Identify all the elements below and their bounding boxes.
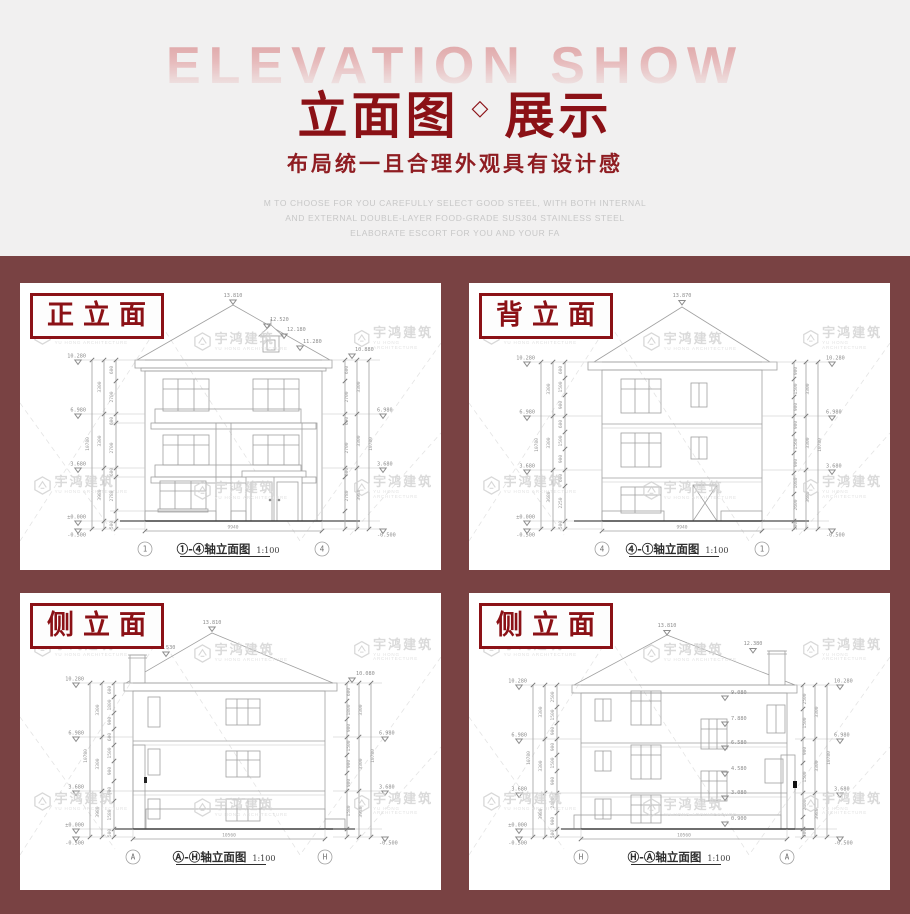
panel-side-elevation-right: 宇鸿建筑YU HONG ARCHITECTURE宇鸿建筑YU HONG ARCH… xyxy=(469,593,890,890)
svg-text:1800: 1800 xyxy=(107,699,113,710)
svg-text:10780: 10780 xyxy=(370,749,376,763)
house-side-a xyxy=(115,633,355,829)
svg-text:Ⓐ-Ⓗ轴立面图1:100: Ⓐ-Ⓗ轴立面图1:100 xyxy=(173,850,276,864)
svg-text:10780: 10780 xyxy=(83,749,89,763)
elevation-gallery: 宇鸿建筑YU HONG ARCHITECTURE宇鸿建筑YU HONG ARCH… xyxy=(0,256,910,914)
svg-text:1500: 1500 xyxy=(802,717,808,728)
svg-text:600: 600 xyxy=(344,366,350,375)
fineprint: M TO CHOOSE FOR YOU CAREFULLY SELECT GOO… xyxy=(0,196,910,241)
page: ELEVATION SHOW 立面图◇展示 布局统一且合理外观具有设计感 M T… xyxy=(0,0,910,914)
left-small-windows xyxy=(595,699,611,819)
svg-text:10.280: 10.280 xyxy=(508,679,527,685)
svg-text:1500: 1500 xyxy=(107,747,113,758)
svg-text:6.580: 6.580 xyxy=(731,740,747,746)
svg-text:600: 600 xyxy=(107,733,113,742)
svg-text:900: 900 xyxy=(802,747,808,756)
svg-text:2780: 2780 xyxy=(109,490,115,501)
svg-text:2700: 2700 xyxy=(344,391,350,402)
svg-text:0.900: 0.900 xyxy=(731,816,747,822)
axis-left: A xyxy=(131,853,136,862)
svg-text:1500: 1500 xyxy=(802,771,808,782)
elevation-triangles xyxy=(837,685,843,841)
svg-text:4.580: 4.580 xyxy=(731,766,747,772)
svg-text:1500: 1500 xyxy=(346,740,352,751)
svg-text:-0.500: -0.500 xyxy=(377,533,396,539)
svg-text:10.880: 10.880 xyxy=(355,347,374,353)
plinth-mid xyxy=(231,511,246,521)
svg-text:3.680: 3.680 xyxy=(834,787,850,793)
fineprint-line-3: ELABORATE ESCORT FOR YOU AND YOUR FA xyxy=(0,226,910,241)
floor3-balcony xyxy=(151,409,316,429)
svg-text:2700: 2700 xyxy=(344,442,350,453)
svg-text:600: 600 xyxy=(558,474,564,483)
svg-text:10780: 10780 xyxy=(85,437,91,451)
svg-text:6.980: 6.980 xyxy=(377,408,393,414)
svg-text:600: 600 xyxy=(107,686,113,695)
plinth xyxy=(574,815,781,829)
center-windows xyxy=(226,699,260,821)
svg-text:10.280: 10.280 xyxy=(65,677,84,683)
title-diamond-icon: ◇ xyxy=(472,95,493,121)
elevation-triangles xyxy=(829,362,835,533)
svg-text:900: 900 xyxy=(346,760,352,769)
svg-text:6.980: 6.980 xyxy=(834,733,850,739)
page-subtitle: 布局统一且合理外观具有设计感 xyxy=(0,148,910,178)
svg-text:3980: 3980 xyxy=(538,808,544,819)
panel-side-elevation-left: 宇鸿建筑YU HONG ARCHITECTURE宇鸿建筑YU HONG ARCH… xyxy=(20,593,441,890)
facade xyxy=(581,693,787,829)
svg-text:2780: 2780 xyxy=(344,490,350,501)
svg-text:900: 900 xyxy=(346,779,352,788)
svg-text:900: 900 xyxy=(550,777,556,786)
svg-text:600: 600 xyxy=(109,417,115,426)
svg-text:-0.500: -0.500 xyxy=(508,841,527,847)
svg-text:10780: 10780 xyxy=(534,438,540,452)
fineprint-line-2: AND EXTERNAL DOUBLE-LAYER FOOD-GRADE SUS… xyxy=(0,211,910,226)
svg-text:3300: 3300 xyxy=(95,704,101,715)
svg-text:6.980: 6.980 xyxy=(511,733,527,739)
svg-text:3980: 3980 xyxy=(814,808,820,819)
svg-text:900: 900 xyxy=(793,421,799,430)
svg-text:10.280: 10.280 xyxy=(67,354,86,360)
svg-text:900: 900 xyxy=(550,743,556,752)
width-dimension: 9940 xyxy=(227,525,238,531)
entry-door xyxy=(242,471,306,521)
svg-text:2400: 2400 xyxy=(802,799,808,810)
svg-text:10780: 10780 xyxy=(826,751,832,765)
caption-scale: 1:100 xyxy=(256,546,279,555)
caption-scale: 1:100 xyxy=(705,546,728,555)
page-title-right: 展示 xyxy=(504,88,612,144)
svg-text:1500: 1500 xyxy=(550,757,556,768)
panel-front-elevation: 宇鸿建筑YU HONG ARCHITECTURE宇鸿建筑YU HONG ARCH… xyxy=(20,283,441,570)
svg-text:3980: 3980 xyxy=(358,806,364,817)
caption-text: ④-①轴立面图 xyxy=(626,542,700,556)
svg-text:900: 900 xyxy=(550,817,556,826)
svg-text:500: 500 xyxy=(558,521,564,530)
svg-text:3.080: 3.080 xyxy=(731,790,747,796)
svg-text:2250: 2250 xyxy=(558,497,564,508)
svg-text:1080: 1080 xyxy=(793,477,799,488)
dimensions-left: 600 2700 600 2700 600 2780 500 3300 3300… xyxy=(67,354,145,539)
svg-text:1500: 1500 xyxy=(793,383,799,394)
svg-text:900: 900 xyxy=(107,767,113,776)
cornice xyxy=(124,683,337,691)
svg-text:3680: 3680 xyxy=(805,491,811,502)
axis-left: 4 xyxy=(600,545,605,554)
svg-text:3300: 3300 xyxy=(97,381,103,392)
svg-text:500: 500 xyxy=(107,829,113,838)
slab-lines xyxy=(602,424,762,478)
svg-text:1560: 1560 xyxy=(793,438,799,449)
svg-text:3300: 3300 xyxy=(356,381,362,392)
stone-pillar xyxy=(133,745,145,829)
svg-text:10.280: 10.280 xyxy=(834,679,853,685)
svg-text:10.280: 10.280 xyxy=(516,356,535,362)
svg-text:9.080: 9.080 xyxy=(731,690,747,696)
svg-text:3980: 3980 xyxy=(356,489,362,500)
svg-text:1500: 1500 xyxy=(558,381,564,392)
plinth xyxy=(146,809,325,829)
svg-text:1580: 1580 xyxy=(107,809,113,820)
svg-text:±0.000: ±0.000 xyxy=(516,515,535,521)
chimney xyxy=(128,655,147,683)
axis-right: H xyxy=(323,853,328,862)
svg-text:12.380: 12.380 xyxy=(744,641,763,647)
svg-text:900: 900 xyxy=(550,727,556,736)
cornice xyxy=(135,360,332,368)
ground-floor-window xyxy=(158,481,208,512)
cornice-band xyxy=(141,368,326,371)
svg-text:3.680: 3.680 xyxy=(519,464,535,470)
bottom-dimension: 9940 xyxy=(143,521,324,533)
axis-left: 1 xyxy=(143,545,148,554)
svg-text:2700: 2700 xyxy=(109,442,115,453)
svg-text:6.980: 6.980 xyxy=(826,410,842,416)
svg-text:3.680: 3.680 xyxy=(377,462,393,468)
svg-text:3300: 3300 xyxy=(805,437,811,448)
svg-text:6.980: 6.980 xyxy=(68,731,84,737)
panel-label-side-left: 侧立面 xyxy=(30,603,164,649)
svg-text:3300: 3300 xyxy=(814,760,820,771)
width-dimension: 9940 xyxy=(676,525,687,531)
roof-dimension-labels: 13.810 12.520 12.180 11.280 10.880 xyxy=(224,293,374,358)
fineprint-line-1: M TO CHOOSE FOR YOU CAREFULLY SELECT GOO… xyxy=(0,196,910,211)
dormer xyxy=(259,319,283,352)
slab-lines xyxy=(581,743,787,793)
svg-text:±0.000: ±0.000 xyxy=(65,823,84,829)
svg-text:500: 500 xyxy=(802,829,808,838)
svg-text:3.680: 3.680 xyxy=(68,785,84,791)
floor3-windows xyxy=(621,379,707,413)
svg-text:11.280: 11.280 xyxy=(303,339,322,345)
svg-text:3300: 3300 xyxy=(356,435,362,446)
svg-text:-0.500: -0.500 xyxy=(65,841,84,847)
elevation-triangles xyxy=(73,683,79,841)
svg-text:7.880: 7.880 xyxy=(731,716,747,722)
svg-text:600: 600 xyxy=(558,366,564,375)
svg-text:2500: 2500 xyxy=(802,693,808,704)
svg-text:500: 500 xyxy=(793,522,799,531)
dimensions-left: 2500 1500 900 900 1500 900 2400 900 500 … xyxy=(508,679,581,847)
svg-text:600: 600 xyxy=(346,688,352,697)
svg-text:-0.500: -0.500 xyxy=(516,533,535,539)
narrow-windows xyxy=(144,697,160,819)
bottom-dimension: 10560 xyxy=(579,829,789,841)
svg-text:3300: 3300 xyxy=(546,383,552,394)
svg-text:±0.000: ±0.000 xyxy=(508,823,527,829)
svg-text:1500: 1500 xyxy=(558,435,564,446)
svg-text:④-①轴立面图1:100: ④-①轴立面图1:100 xyxy=(626,542,729,556)
pillar-lamp xyxy=(793,781,797,788)
plinth-left xyxy=(145,511,216,521)
back-door xyxy=(693,485,717,521)
roof-dimension-labels: 13.810 12.380 xyxy=(658,623,763,653)
roof-dimension-labels: 13.810 12.530 10.080 xyxy=(157,620,375,682)
svg-text:900: 900 xyxy=(107,717,113,726)
side-bench xyxy=(325,819,345,829)
svg-text:900: 900 xyxy=(793,403,799,412)
svg-text:3.680: 3.680 xyxy=(826,464,842,470)
floor3-windows xyxy=(163,379,299,411)
svg-text:3300: 3300 xyxy=(358,758,364,769)
bottom-dimension: 10560 xyxy=(131,829,327,841)
cornice xyxy=(588,362,777,370)
svg-text:1500: 1500 xyxy=(550,709,556,720)
svg-text:6.980: 6.980 xyxy=(70,408,86,414)
svg-text:900: 900 xyxy=(346,724,352,733)
svg-text:600: 600 xyxy=(109,366,115,375)
svg-text:900: 900 xyxy=(793,367,799,376)
svg-text:500: 500 xyxy=(550,830,556,839)
svg-text:-0.500: -0.500 xyxy=(834,841,853,847)
svg-text:13.810: 13.810 xyxy=(658,623,677,629)
svg-text:10780: 10780 xyxy=(526,751,532,765)
svg-text:3980: 3980 xyxy=(97,489,103,500)
svg-text:-0.500: -0.500 xyxy=(379,841,398,847)
house-side-b xyxy=(561,635,814,829)
stair-tower xyxy=(767,651,787,685)
svg-text:3.680: 3.680 xyxy=(70,462,86,468)
svg-text:6.980: 6.980 xyxy=(379,731,395,737)
svg-text:12.520: 12.520 xyxy=(270,317,289,323)
axis-right: A xyxy=(785,853,790,862)
elevation-triangles xyxy=(516,685,522,841)
svg-text:1580: 1580 xyxy=(346,805,352,816)
page-title-left: 立面图 xyxy=(298,88,460,144)
dimensions-right: 900 1500 900 900 1560 900 1080 2600 500 … xyxy=(762,356,845,539)
panel-back-elevation: 宇鸿建筑YU HONG ARCHITECTURE宇鸿建筑YU HONG ARCH… xyxy=(469,283,890,570)
svg-text:3300: 3300 xyxy=(97,435,103,446)
plinth-left xyxy=(602,511,664,521)
svg-text:10.280: 10.280 xyxy=(826,356,845,362)
svg-text:13.810: 13.810 xyxy=(224,293,243,299)
svg-text:900: 900 xyxy=(793,459,799,468)
width-dimension: 10560 xyxy=(677,833,691,839)
svg-text:2500: 2500 xyxy=(550,691,556,702)
svg-text:3980: 3980 xyxy=(95,806,101,817)
panel-label-back: 背立面 xyxy=(479,293,613,339)
page-title: 立面图◇展示 xyxy=(0,76,910,148)
svg-text:10.080: 10.080 xyxy=(356,671,375,677)
svg-text:-0.500: -0.500 xyxy=(826,533,845,539)
svg-text:±0.000: ±0.000 xyxy=(67,515,86,521)
drawing-caption: Ⓗ-Ⓐ轴立面图1:100 xyxy=(628,850,731,865)
svg-text:900: 900 xyxy=(558,455,564,464)
svg-text:3300: 3300 xyxy=(538,760,544,771)
roof xyxy=(594,307,770,362)
svg-text:3300: 3300 xyxy=(538,706,544,717)
svg-text:900: 900 xyxy=(107,787,113,796)
svg-text:①-④轴立面图1:100: ①-④轴立面图1:100 xyxy=(177,542,280,556)
svg-text:10780: 10780 xyxy=(368,437,374,451)
svg-text:13.870: 13.870 xyxy=(673,293,692,299)
dimensions-left: 600 1800 900 600 1500 900 900 1580 500 3… xyxy=(65,677,133,847)
caption-text: ①-④轴立面图 xyxy=(177,542,251,556)
axis-right: 1 xyxy=(760,545,765,554)
axis-left: H xyxy=(579,853,584,862)
floor1-window xyxy=(621,487,661,513)
svg-text:3680: 3680 xyxy=(546,491,552,502)
drawing-caption: ①-④轴立面图1:100 xyxy=(177,542,280,557)
svg-text:-0.500: -0.500 xyxy=(67,533,86,539)
stone-pillar-left xyxy=(216,423,231,521)
width-dimension: 10560 xyxy=(222,833,236,839)
roof-dimension-labels: 13.870 xyxy=(673,293,692,305)
caption-text: Ⓐ-Ⓗ轴立面图 xyxy=(173,850,247,864)
svg-text:600: 600 xyxy=(344,417,350,426)
svg-text:3300: 3300 xyxy=(95,758,101,769)
axis-right: 4 xyxy=(320,545,325,554)
caption-scale: 1:100 xyxy=(252,854,275,863)
svg-text:10780: 10780 xyxy=(817,438,823,452)
svg-text:3300: 3300 xyxy=(814,706,820,717)
bottom-dimension: 9940 xyxy=(600,521,764,533)
right-windows xyxy=(765,705,785,783)
svg-text:2600: 2600 xyxy=(793,499,799,510)
svg-text:6.980: 6.980 xyxy=(519,410,535,416)
svg-text:3.680: 3.680 xyxy=(511,787,527,793)
hero-header: ELEVATION SHOW 立面图◇展示 布局统一且合理外观具有设计感 M T… xyxy=(0,0,910,256)
stair-elevation-labels: 9.080 7.880 6.580 4.580 3.080 0.900 xyxy=(722,690,747,826)
elevation-triangles xyxy=(380,414,386,533)
panel-label-side-right: 侧立面 xyxy=(479,603,613,649)
svg-text:2400: 2400 xyxy=(550,797,556,808)
dimensions-right: 600 2700 600 2700 600 2780 3300 3300 398… xyxy=(322,358,396,539)
svg-text:2700: 2700 xyxy=(109,391,115,402)
svg-text:13.810: 13.810 xyxy=(203,620,222,626)
svg-text:500: 500 xyxy=(109,521,115,530)
svg-text:3.680: 3.680 xyxy=(379,785,395,791)
caption-text: Ⓗ-Ⓐ轴立面图 xyxy=(628,850,702,864)
svg-text:600: 600 xyxy=(558,420,564,429)
plinth-right xyxy=(721,511,762,521)
panel-grid: 宇鸿建筑YU HONG ARCHITECTURE宇鸿建筑YU HONG ARCH… xyxy=(20,283,890,890)
svg-text:600: 600 xyxy=(109,468,115,477)
stair-windows xyxy=(701,719,727,801)
svg-text:3300: 3300 xyxy=(546,437,552,448)
slab-lines xyxy=(133,741,325,791)
drawing-caption: Ⓐ-Ⓗ轴立面图1:100 xyxy=(173,850,276,865)
svg-text:3300: 3300 xyxy=(805,383,811,394)
svg-text:12.180: 12.180 xyxy=(287,327,306,333)
facade xyxy=(602,370,762,521)
drawing-caption: ④-①轴立面图1:100 xyxy=(626,542,729,557)
floor2-windows xyxy=(621,433,707,467)
svg-text:900: 900 xyxy=(558,401,564,410)
panel-label-front: 正立面 xyxy=(30,293,164,339)
caption-scale: 1:100 xyxy=(707,854,730,863)
svg-text:3300: 3300 xyxy=(358,704,364,715)
cornice xyxy=(572,685,797,693)
svg-text:600: 600 xyxy=(344,468,350,477)
svg-text:1800: 1800 xyxy=(346,704,352,715)
svg-text:Ⓗ-Ⓐ轴立面图1:100: Ⓗ-Ⓐ轴立面图1:100 xyxy=(628,850,731,864)
